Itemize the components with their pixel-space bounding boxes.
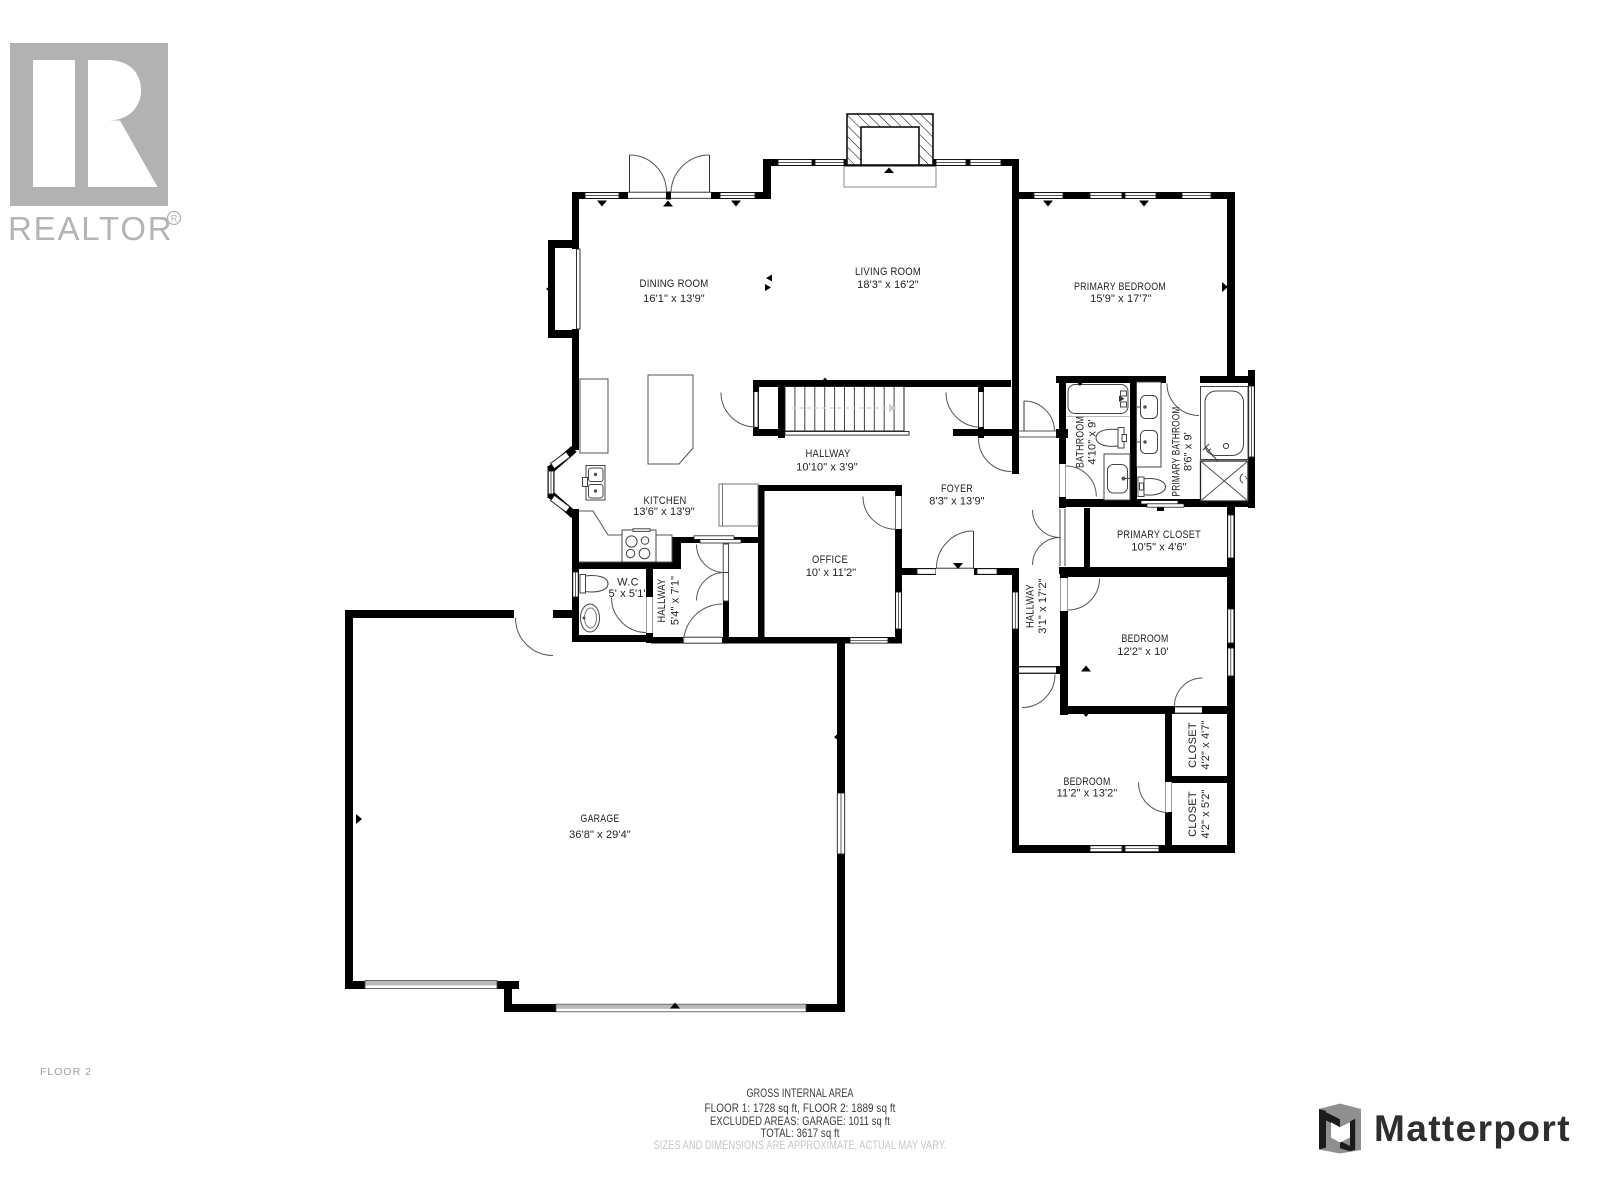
svg-text:GARAGE: GARAGE [581, 813, 620, 825]
svg-text:4'2" x 5'2": 4'2" x 5'2" [1200, 789, 1212, 838]
svg-text:PRIMARY CLOSET: PRIMARY CLOSET [1117, 529, 1201, 541]
svg-text:HALLWAY: HALLWAY [1024, 584, 1036, 628]
svg-text:FLOOR 2: FLOOR 2 [40, 1066, 92, 1078]
svg-text:CLOSET: CLOSET [1187, 791, 1199, 837]
svg-text:8'3" x 13'9": 8'3" x 13'9" [929, 496, 984, 508]
svg-text:5'4" x 7'1": 5'4" x 7'1" [669, 576, 681, 625]
svg-text:16'1" x 13'9": 16'1" x 13'9" [643, 293, 705, 305]
svg-text:13'6" x 13'9": 13'6" x 13'9" [633, 506, 695, 518]
svg-text:18'3" x 16'2": 18'3" x 16'2" [857, 279, 919, 291]
svg-text:11'2" x 13'2": 11'2" x 13'2" [1057, 788, 1118, 800]
svg-text:10' x 11'2": 10' x 11'2" [806, 567, 857, 579]
svg-text:10'5" x 4'6": 10'5" x 4'6" [1131, 542, 1186, 554]
svg-text:W.C: W.C [617, 577, 639, 589]
svg-text:SIZES AND DIMENSIONS ARE APPRO: SIZES AND DIMENSIONS ARE APPROXIMATE, AC… [654, 1138, 947, 1152]
svg-text:HALLWAY: HALLWAY [806, 448, 851, 460]
svg-text:OFFICE: OFFICE [812, 554, 848, 566]
svg-text:LIVING ROOM: LIVING ROOM [855, 266, 921, 278]
svg-text:BATHROOM: BATHROOM [1074, 416, 1086, 468]
svg-text:4'10" x 9': 4'10" x 9' [1086, 419, 1098, 464]
svg-text:Matterport: Matterport [1374, 1108, 1571, 1149]
svg-text:PRIMARY BEDROOM: PRIMARY BEDROOM [1074, 281, 1166, 293]
svg-text:3'1" x 17'2": 3'1" x 17'2" [1037, 578, 1049, 633]
svg-text:HALLWAY: HALLWAY [656, 578, 668, 622]
svg-text:5' x 5'1": 5' x 5'1" [609, 588, 648, 600]
svg-text:REALTOR: REALTOR [8, 210, 173, 247]
svg-text:FLOOR 1: 1728 sq ft, FLOOR 2:: FLOOR 1: 1728 sq ft, FLOOR 2: 1889 sq ft [705, 1101, 896, 1115]
svg-text:10'10" x 3'9": 10'10" x 3'9" [796, 462, 858, 474]
svg-text:PRIMARY BATHROOM: PRIMARY BATHROOM [1170, 407, 1182, 497]
svg-text:15'9" x 17'7": 15'9" x 17'7" [1090, 293, 1152, 305]
svg-text:R: R [171, 214, 178, 224]
svg-text:12'2" x 10': 12'2" x 10' [1117, 646, 1168, 658]
svg-text:FOYER: FOYER [941, 483, 973, 495]
svg-text:BEDROOM: BEDROOM [1064, 776, 1111, 788]
svg-text:BEDROOM: BEDROOM [1122, 633, 1169, 645]
svg-text:4'2" x 4'7": 4'2" x 4'7" [1200, 720, 1212, 769]
svg-text:DINING ROOM: DINING ROOM [640, 278, 709, 290]
svg-text:CLOSET: CLOSET [1187, 722, 1199, 768]
svg-text:GROSS INTERNAL AREA: GROSS INTERNAL AREA [747, 1086, 854, 1100]
svg-text:8'6" x 9': 8'6" x 9' [1182, 432, 1194, 471]
svg-text:36'8" x 29'4": 36'8" x 29'4" [569, 829, 631, 841]
